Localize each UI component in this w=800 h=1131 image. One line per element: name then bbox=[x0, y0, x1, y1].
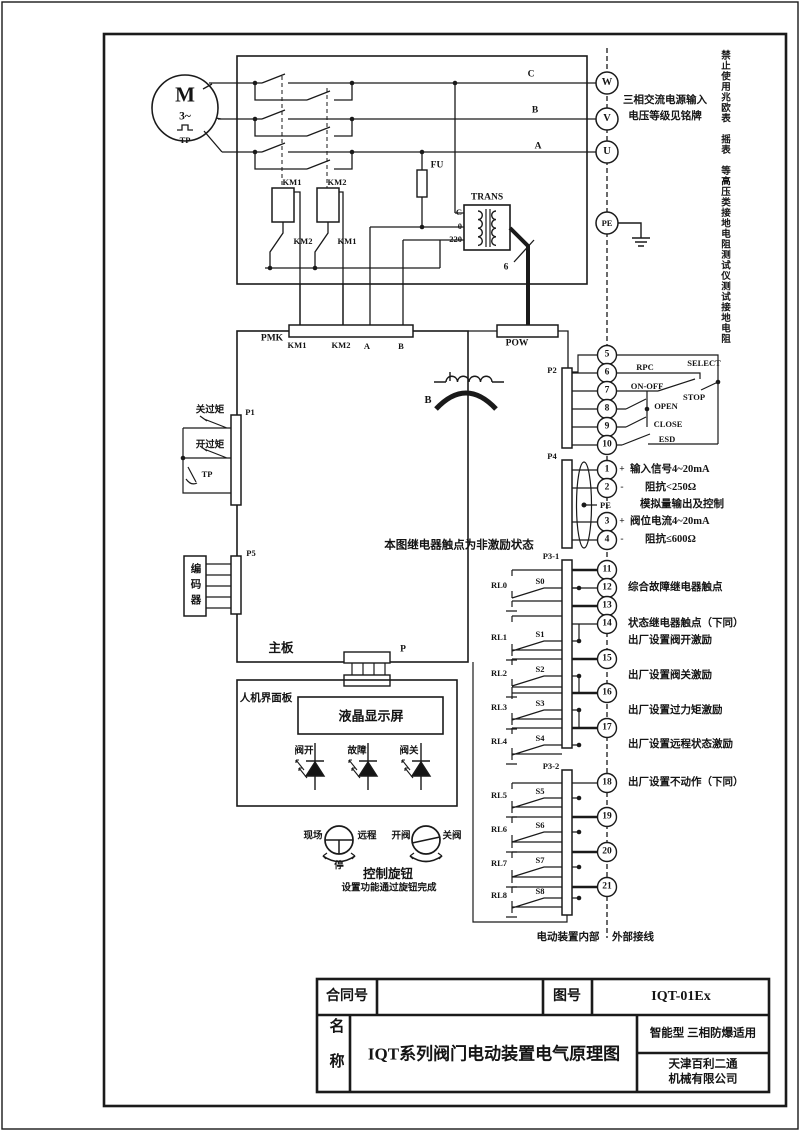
pmk-connector bbox=[289, 284, 413, 337]
tp-switch-label: TP bbox=[202, 470, 213, 479]
encoder-label: 编码器 bbox=[188, 563, 203, 610]
led-close-label: 阀关 bbox=[399, 747, 418, 757]
relay-rl3-label: RL3 bbox=[491, 703, 507, 712]
relay-s4-label: S4 bbox=[536, 734, 545, 743]
relay-s5-label: S5 bbox=[536, 787, 545, 796]
relay-rl7-label: RL7 bbox=[491, 859, 507, 868]
page-border bbox=[2, 2, 798, 1129]
external-note: 外部接线 bbox=[612, 933, 654, 944]
onoff-label: ON-OFF bbox=[631, 382, 664, 391]
drawing-title: IQT系列阀门电动装置电气原理图 bbox=[368, 1046, 620, 1063]
esd-label: ESD bbox=[659, 435, 676, 444]
phase-a-label: A bbox=[535, 142, 542, 152]
terminal-u: U bbox=[603, 147, 611, 158]
terminal-13: 13 bbox=[602, 601, 612, 611]
p4-label: P4 bbox=[547, 452, 556, 461]
local-label: 现场 bbox=[303, 832, 322, 842]
relay-rl4-label: RL4 bbox=[491, 737, 507, 746]
relay-s1-label: S1 bbox=[536, 630, 545, 639]
impedance-out-note: 阻抗≤600Ω bbox=[645, 535, 696, 546]
terminal-17: 17 bbox=[602, 723, 612, 733]
terminal-5: 5 bbox=[605, 350, 610, 360]
knob-note: 设置功能通过旋钮完成 bbox=[341, 884, 436, 894]
valve-knob-icon bbox=[410, 826, 442, 862]
tap-0-label: 0 bbox=[458, 222, 462, 231]
b-winding-label: B bbox=[424, 396, 431, 407]
terminal-v: V bbox=[603, 114, 611, 125]
pmk-label: PMK bbox=[261, 334, 283, 344]
tap-c-label: C bbox=[456, 208, 462, 217]
motor-phases: 3~ bbox=[179, 111, 191, 123]
phase-wires bbox=[209, 74, 596, 188]
relay-rl8-label: RL8 bbox=[491, 891, 507, 900]
pow-connector bbox=[497, 325, 558, 337]
p4-circuit bbox=[562, 460, 598, 548]
pmk-pin-km1: KM1 bbox=[288, 341, 307, 350]
km2-interlock-label: KM2 bbox=[294, 237, 313, 246]
p-connector bbox=[344, 652, 390, 686]
impedance-in-note: 阻抗<250Ω bbox=[645, 483, 696, 494]
select-label: SELECT bbox=[687, 359, 721, 368]
schematic-canvas bbox=[0, 0, 800, 1131]
analog-note: 模拟量输出及控制 bbox=[640, 500, 724, 511]
minus-2: - bbox=[620, 535, 623, 545]
p1-label: P1 bbox=[245, 408, 254, 417]
terminal-6: 6 bbox=[605, 368, 610, 378]
torque-switch-group bbox=[183, 415, 241, 505]
position-current-note: 阀位电流4~20mA bbox=[630, 517, 710, 528]
power-input-note-1: 三相交流电源输入 bbox=[623, 96, 707, 107]
mainboard-box bbox=[237, 331, 568, 662]
km1-interlock-label: KM1 bbox=[338, 237, 357, 246]
close-torque-label: 关过矩 bbox=[196, 406, 225, 416]
p2-label: P2 bbox=[547, 366, 556, 375]
terminal-12: 12 bbox=[602, 583, 612, 593]
terminal-9: 9 bbox=[605, 422, 610, 432]
rpc-label: RPC bbox=[636, 363, 653, 372]
contract-no-label: 合同号 bbox=[326, 990, 368, 1004]
open-label: OPEN bbox=[654, 402, 678, 411]
terminal-pe: PE bbox=[602, 219, 613, 228]
tap-220-label: 220 bbox=[449, 235, 462, 244]
remote-label: 远程 bbox=[357, 832, 376, 842]
power-input-note-2: 电压等级见铭牌 bbox=[628, 112, 702, 123]
terminal-15: 15 bbox=[602, 654, 612, 664]
terminal-14: 14 bbox=[602, 619, 612, 629]
relay-s7-label: S7 bbox=[536, 856, 545, 865]
open-valve-label: 开阀 bbox=[391, 832, 410, 842]
transformer-label: TRANS bbox=[471, 193, 503, 203]
stop-knob-label: 停 bbox=[334, 862, 344, 872]
signal-in-note: 输入信号4~20mA bbox=[630, 465, 710, 476]
relay-rl5-label: RL5 bbox=[491, 791, 507, 800]
terminal-8: 8 bbox=[605, 404, 610, 414]
terminal-20: 20 bbox=[602, 847, 612, 857]
lcd-label: 液晶显示屏 bbox=[338, 710, 403, 723]
relay-rl1-label: RL1 bbox=[491, 633, 507, 642]
relay-s6-label: S6 bbox=[536, 821, 545, 830]
relay-feed-thin bbox=[572, 588, 598, 783]
power-circuit-box bbox=[237, 56, 587, 284]
hmi-panel-label: 人机界面板 bbox=[240, 694, 293, 705]
motor-thermal-label: TP bbox=[180, 136, 191, 145]
p3-1-label: P3-1 bbox=[543, 552, 560, 561]
terminal-3: 3 bbox=[605, 517, 610, 527]
terminal-4: 4 bbox=[605, 535, 610, 545]
terminal-7: 7 bbox=[605, 386, 610, 396]
exc-remote-note: 出厂设置远程状态激励 bbox=[628, 740, 733, 751]
p-label: P bbox=[400, 645, 406, 655]
terminal-2: 2 bbox=[605, 483, 610, 493]
schematic-page: M 3~ TP KM1 KM2 KM2 KM1 FU TRANS C 0 220… bbox=[0, 0, 800, 1131]
drawing-no-label: 图号 bbox=[553, 990, 581, 1004]
relay-rl6-label: RL6 bbox=[491, 825, 507, 834]
fault-relay-note: 综合故障继电器触点 bbox=[628, 583, 723, 594]
pmk-pin-a: A bbox=[364, 342, 370, 351]
internal-note: 电动装置内部 bbox=[537, 933, 600, 944]
phase-c-label: C bbox=[528, 70, 535, 80]
terminal-16: 16 bbox=[602, 688, 612, 698]
relay-s8-label: S8 bbox=[536, 887, 545, 896]
km2-coil-label: KM2 bbox=[328, 178, 347, 187]
power-bus bbox=[510, 228, 534, 325]
exc-close-note: 出厂设置阀关激励 bbox=[628, 671, 712, 682]
contactor-coils bbox=[265, 188, 440, 325]
fuse-symbol bbox=[417, 152, 427, 227]
terminal-21: 21 bbox=[602, 882, 612, 892]
mode-knob-icon bbox=[323, 826, 355, 862]
open-torque-label: 开过矩 bbox=[196, 441, 225, 451]
ground-symbol bbox=[618, 223, 650, 246]
megger-warning-note: 禁止使用兆欧表 摇表 等高压类接地电阻测试仪测试接地电阻 bbox=[717, 50, 731, 344]
field-wiring bbox=[572, 570, 598, 887]
mainboard-label: 主板 bbox=[268, 642, 293, 655]
led-fault-label: 故障 bbox=[347, 747, 366, 757]
drawing-no-value: IQT-01Ex bbox=[651, 990, 710, 1004]
relay-s2-label: S2 bbox=[536, 665, 545, 674]
terminal-19: 19 bbox=[602, 812, 612, 822]
p5-label: P5 bbox=[246, 549, 255, 558]
terminal-18: 18 bbox=[602, 778, 612, 788]
phase-b-label: B bbox=[532, 106, 538, 116]
exc-torque-note: 出厂设置过力矩激励 bbox=[628, 706, 723, 717]
close-valve-label: 关阀 bbox=[442, 832, 461, 842]
km1-coil-label: KM1 bbox=[283, 178, 302, 187]
status-relay-note: 状态继电器触点（下同） bbox=[628, 619, 744, 630]
terminal-11: 11 bbox=[603, 565, 612, 575]
name-cell-label: 名称 bbox=[326, 1018, 347, 1088]
minus-1: - bbox=[620, 483, 623, 493]
exc-open-note: 出厂设置阀开激励 bbox=[628, 636, 712, 647]
motor-letter: M bbox=[175, 85, 195, 106]
company-line2: 机械有限公司 bbox=[669, 1074, 738, 1086]
relay-rl2-label: RL2 bbox=[491, 669, 507, 678]
stop-label: STOP bbox=[683, 393, 705, 402]
fuse-label: FU bbox=[431, 161, 444, 171]
company-line1: 天津百利二通 bbox=[669, 1059, 738, 1071]
terminal-1: 1 bbox=[605, 465, 610, 475]
relay-s3-label: S3 bbox=[536, 699, 545, 708]
pmk-pin-km2: KM2 bbox=[332, 341, 351, 350]
pow-label: POW bbox=[506, 339, 529, 349]
wire-count-label: 6 bbox=[504, 263, 509, 273]
control-knob-label: 控制旋钮 bbox=[363, 868, 413, 881]
pmk-pin-b: B bbox=[398, 342, 404, 351]
relay-state-note: 本图继电器触点为非激励状态 bbox=[384, 540, 534, 552]
relay-s0-label: S0 bbox=[536, 577, 545, 586]
relay-rl0-label: RL0 bbox=[491, 581, 507, 590]
led-open-label: 阀开 bbox=[294, 747, 313, 757]
plus-2: + bbox=[619, 517, 624, 527]
close-label: CLOSE bbox=[654, 420, 683, 429]
no-action-note: 出厂设置不动作（下同） bbox=[628, 778, 744, 789]
plus-1: + bbox=[619, 465, 624, 475]
b-winding-symbol bbox=[434, 372, 504, 409]
type-note: 智能型 三相防爆适用 bbox=[650, 1028, 756, 1040]
terminal-10: 10 bbox=[602, 440, 612, 450]
p3-2-label: P3-2 bbox=[543, 762, 560, 771]
p3-connectors bbox=[473, 560, 572, 922]
p4-pe-label: PE bbox=[600, 501, 611, 510]
terminal-w: W bbox=[602, 78, 613, 89]
